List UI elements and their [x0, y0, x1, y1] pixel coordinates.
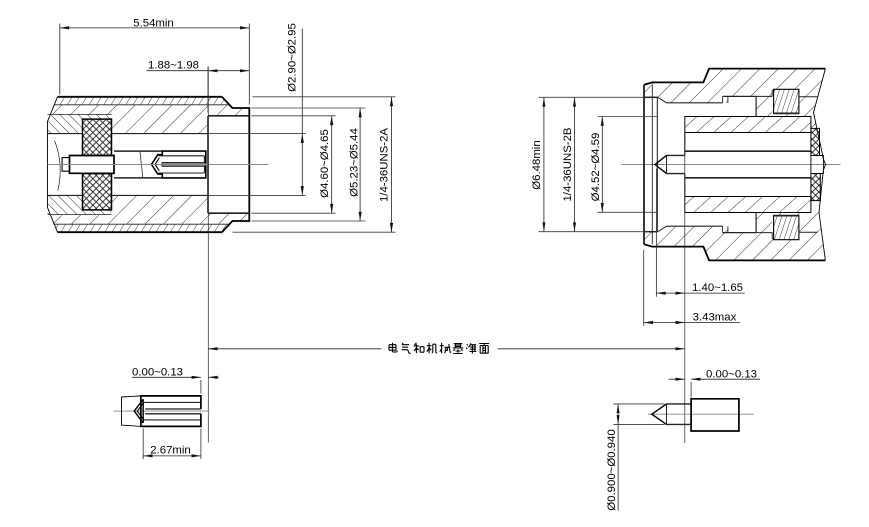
- svg-text:1/4-36UNS-2A: 1/4-36UNS-2A: [378, 128, 390, 202]
- svg-text:Ø5.23~Ø5.44: Ø5.23~Ø5.44: [348, 128, 360, 197]
- svg-text:1/4-36UNS-2B: 1/4-36UNS-2B: [562, 127, 574, 201]
- svg-text:Ø4.52~Ø4.59: Ø4.52~Ø4.59: [590, 133, 602, 202]
- svg-text:0.00~0.13: 0.00~0.13: [706, 369, 757, 381]
- svg-text:0.00~0.13: 0.00~0.13: [132, 366, 183, 378]
- svg-text:5.54min: 5.54min: [133, 18, 174, 30]
- svg-text:2.67min: 2.67min: [150, 445, 191, 457]
- svg-text:Ø6.48min: Ø6.48min: [531, 140, 543, 189]
- svg-text:Ø2.90~Ø2.95: Ø2.90~Ø2.95: [287, 23, 299, 92]
- svg-text:1.88~1.98: 1.88~1.98: [148, 60, 199, 72]
- svg-text:Ø4.60~Ø4.65: Ø4.60~Ø4.65: [319, 129, 331, 198]
- svg-text:Ø0.900~Ø0.940: Ø0.900~Ø0.940: [606, 429, 618, 510]
- svg-text:1.40~1.65: 1.40~1.65: [692, 282, 743, 294]
- svg-text:3.43max: 3.43max: [693, 311, 737, 323]
